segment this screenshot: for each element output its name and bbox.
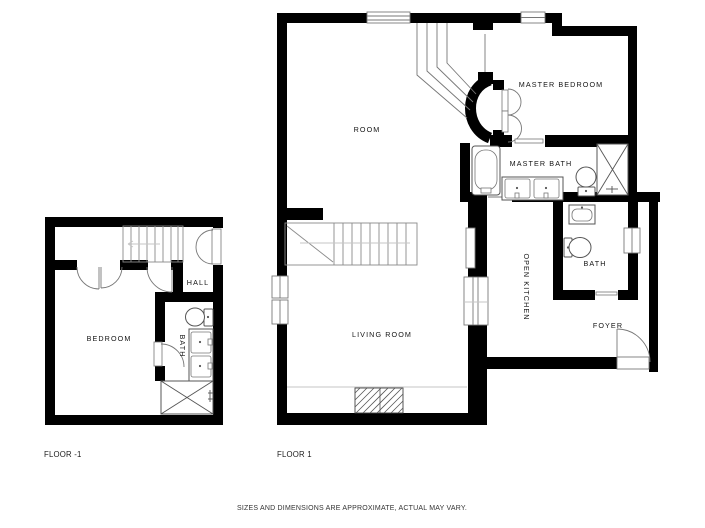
shower-symbol-floor-minus1 — [161, 381, 213, 414]
bath-sliding-door — [596, 292, 617, 295]
room-label-open-kitchen: OPEN KITCHEN — [522, 253, 531, 320]
window-symbol-bath-right — [624, 228, 640, 253]
double-sink-vanity-symbol-master-bath — [502, 177, 563, 200]
room-label-master-bath: MASTER BATH — [510, 159, 573, 168]
floor-1-walls — [277, 13, 660, 425]
floor-plan-canvas: BEDROOM HALL BATH — [0, 0, 705, 528]
master-bedroom-pocket-door — [515, 139, 543, 143]
entry-door — [617, 329, 650, 369]
room-label-bedroom: BEDROOM — [87, 334, 132, 343]
room-label-room: ROOM — [354, 125, 381, 134]
floorplan-page: BEDROOM HALL BATH — [0, 0, 705, 528]
bathtub-symbol — [472, 146, 500, 195]
master-bedroom-double-door — [502, 89, 522, 142]
room-label-master-bedroom: MASTER BEDROOM — [519, 80, 604, 89]
toilet-symbol-bath — [564, 238, 591, 258]
window-symbol-master-bedroom — [521, 12, 545, 23]
fireplace-hatch — [287, 387, 467, 413]
room-label-hall: HALL — [187, 278, 209, 287]
toilet-symbol-master-bath — [576, 167, 596, 196]
room-label-living-room: LIVING ROOM — [352, 330, 412, 339]
double-sink-vanity-symbol-floor-minus1 — [189, 329, 213, 381]
window-symbol-living-left — [272, 276, 288, 324]
landing-door — [147, 267, 172, 292]
bedroom-double-door — [77, 267, 122, 289]
room-label-bath-floor-minus1: BATH — [178, 334, 187, 357]
room-label-foyer: FOYER — [593, 321, 623, 330]
shower-symbol-master-bath — [597, 144, 628, 195]
stairs-symbol-floor-1 — [285, 223, 417, 265]
floor-1-caption: FLOOR 1 — [277, 450, 312, 459]
closet-double-door — [196, 228, 223, 265]
sink-symbol-bath — [569, 205, 595, 224]
stairs-symbol-floor-minus1 — [123, 226, 183, 262]
floor-minus1-caption: FLOOR -1 — [44, 450, 82, 459]
floor-minus1-plan: BEDROOM HALL BATH — [45, 217, 223, 425]
curved-wall — [471, 80, 491, 138]
toilet-symbol-floor-minus1 — [186, 308, 214, 326]
room-label-bath-floor-1: BATH — [583, 259, 606, 268]
floor-1-plan: ROOM MASTER BEDROOM MASTER BATH BATH FOY… — [272, 12, 660, 425]
disclaimer-text: SIZES AND DIMENSIONS ARE APPROXIMATE, AC… — [237, 505, 467, 512]
window-symbol-room-top — [367, 12, 410, 23]
